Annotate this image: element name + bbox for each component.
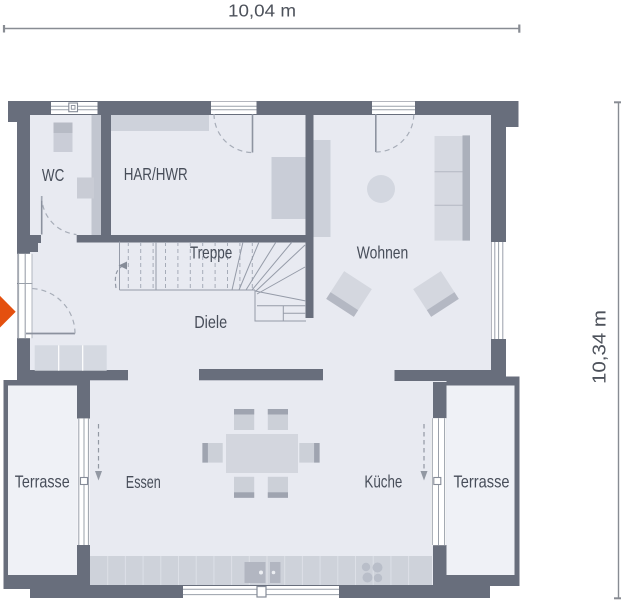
svg-text:WC: WC — [42, 165, 64, 185]
svg-text:Terrasse: Terrasse — [15, 471, 70, 491]
svg-text:HAR/HWR: HAR/HWR — [124, 164, 188, 184]
svg-text:Terrasse: Terrasse — [454, 471, 510, 491]
svg-text:10,04 m: 10,04 m — [228, 1, 296, 21]
svg-text:Essen: Essen — [126, 472, 161, 492]
svg-text:Diele: Diele — [194, 312, 227, 332]
svg-text:10,34 m: 10,34 m — [590, 310, 610, 384]
svg-text:Treppe: Treppe — [190, 242, 233, 262]
svg-text:Küche: Küche — [364, 472, 402, 492]
svg-text:Wohnen: Wohnen — [357, 243, 409, 263]
